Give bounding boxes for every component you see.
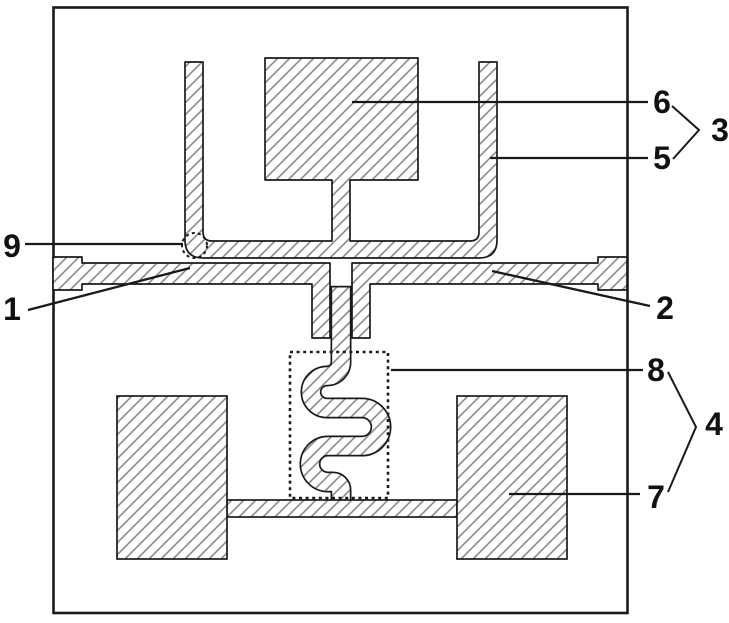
bottom-right-pad bbox=[457, 396, 567, 559]
figure-label-2: 2 bbox=[656, 290, 674, 326]
brace-chevron-3 bbox=[672, 106, 699, 159]
figure-label-8: 8 bbox=[647, 352, 665, 388]
patent-figure: 916532847 bbox=[0, 0, 729, 623]
figure-label-7: 7 bbox=[647, 479, 665, 515]
figure-label-5: 5 bbox=[653, 140, 671, 176]
figure-label-4: 4 bbox=[705, 406, 723, 442]
diagram-canvas: 916532847 bbox=[0, 0, 729, 623]
figure-label-9: 9 bbox=[3, 228, 21, 264]
figure-label-3: 3 bbox=[711, 112, 729, 148]
brace-chevron-4 bbox=[668, 372, 696, 492]
figure-label-6: 6 bbox=[653, 84, 671, 120]
figure-label-1: 1 bbox=[3, 291, 21, 327]
bottom-left-pad bbox=[117, 396, 227, 559]
bottom-connecting-bar bbox=[227, 500, 457, 517]
